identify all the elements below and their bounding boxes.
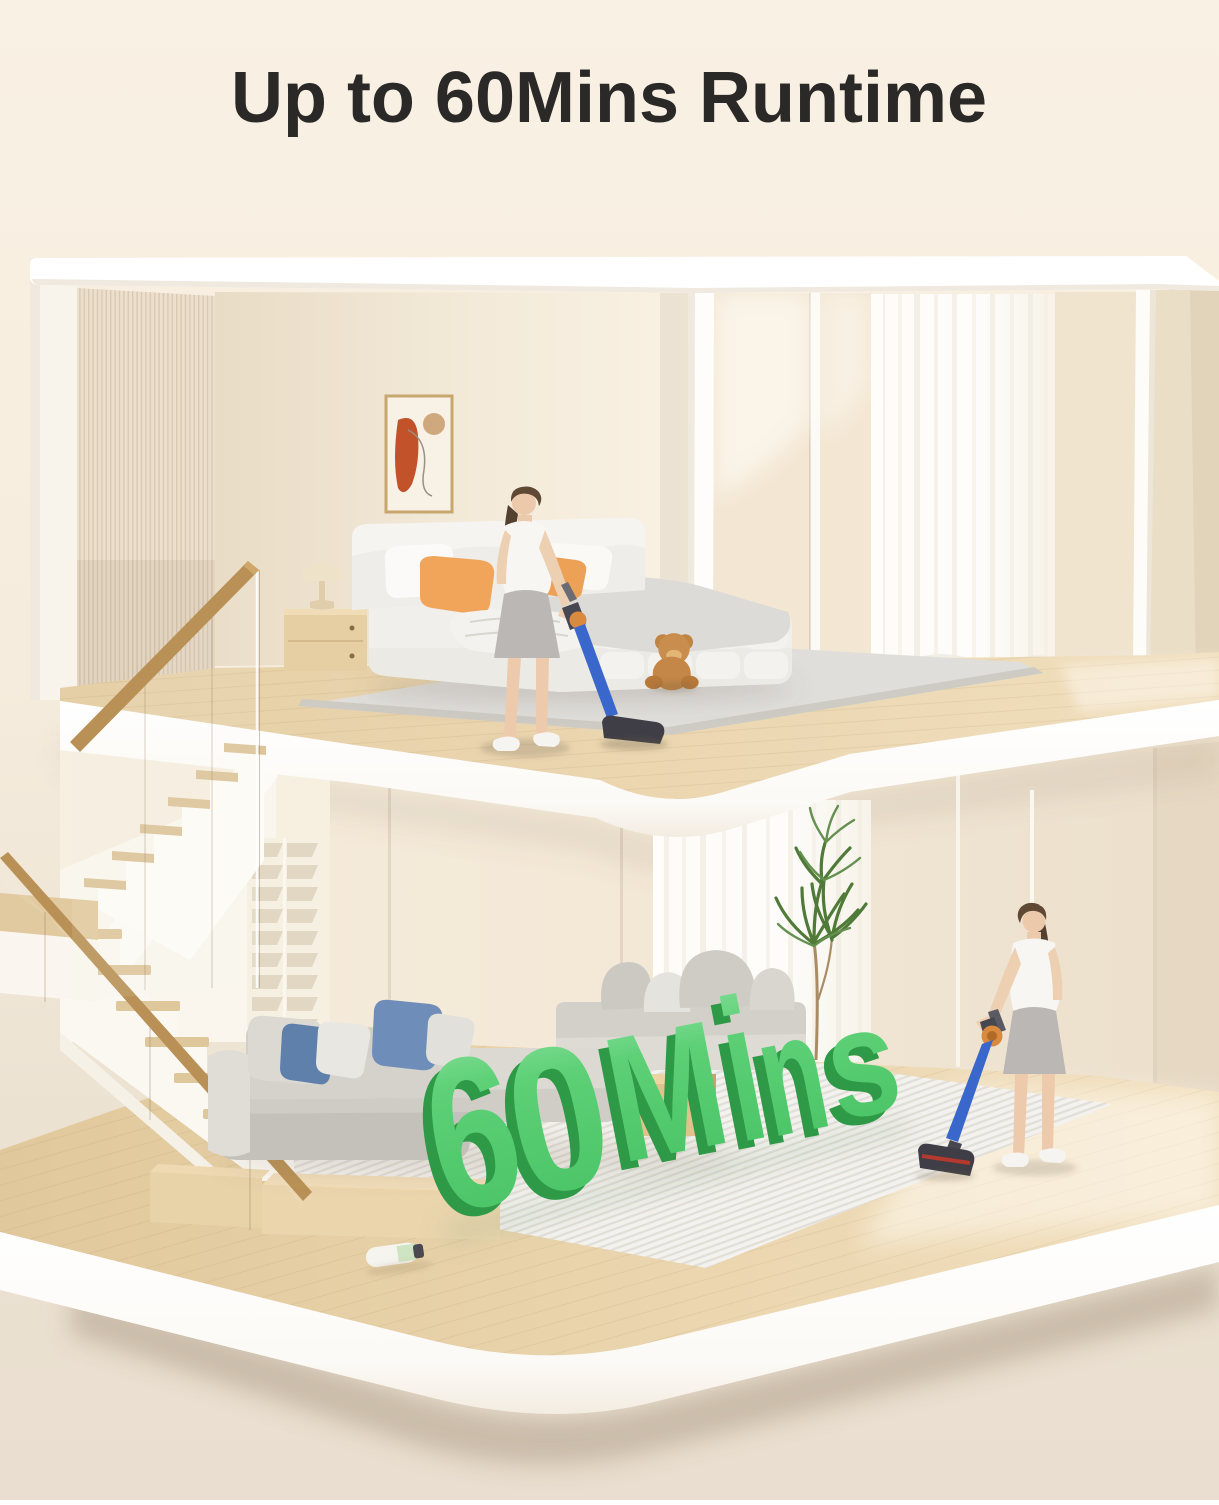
- svg-text:Up to 60Mins Runtime: Up to 60Mins Runtime: [231, 58, 987, 138]
